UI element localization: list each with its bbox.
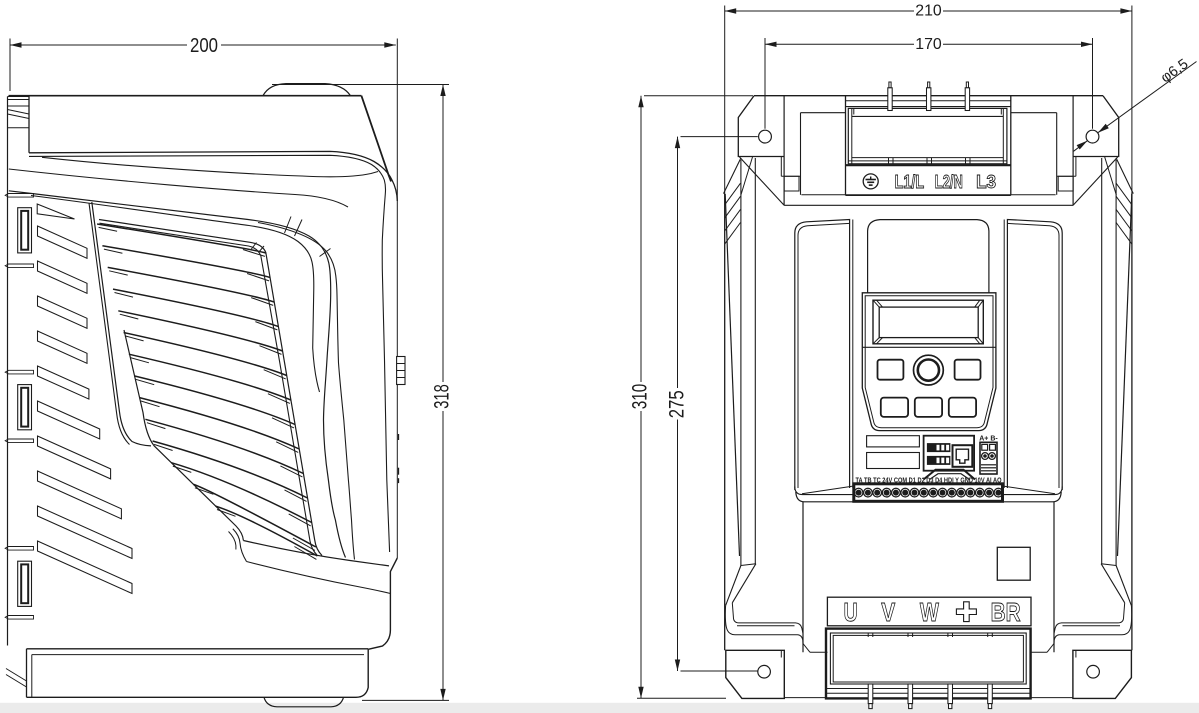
svg-text:318: 318 [431, 384, 454, 409]
svg-text:A+ B-: A+ B- [979, 436, 998, 443]
svg-text:310: 310 [628, 384, 651, 410]
svg-text:200: 200 [190, 34, 218, 57]
svg-text:L2/N: L2/N [935, 172, 963, 192]
svg-text:V: V [881, 597, 896, 627]
svg-text:275: 275 [665, 390, 688, 418]
svg-text:W: W [920, 597, 939, 627]
svg-text:170: 170 [915, 36, 942, 53]
svg-text:L1/L: L1/L [895, 172, 925, 192]
svg-text:210: 210 [915, 3, 942, 20]
svg-text:BR: BR [991, 597, 1021, 627]
svg-text:U: U [844, 597, 858, 627]
svg-text:L3: L3 [976, 172, 996, 192]
